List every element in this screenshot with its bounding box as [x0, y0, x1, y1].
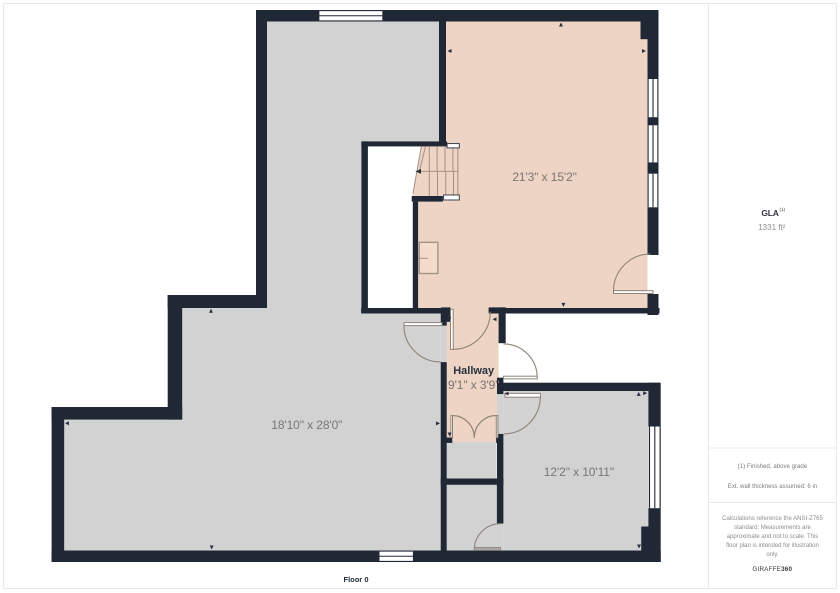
svg-text:1331 ft²: 1331 ft²	[758, 223, 785, 232]
svg-text:GIRAFFE360: GIRAFFE360	[752, 566, 792, 573]
svg-text:18'10" x 28'0": 18'10" x 28'0"	[271, 418, 342, 432]
svg-text:Hallway: Hallway	[453, 365, 495, 377]
svg-text:Ext. wall thickness assumed: 6: Ext. wall thickness assumed: 6 in	[728, 483, 817, 490]
svg-text:12'2" x 10'11": 12'2" x 10'11"	[544, 465, 614, 479]
svg-text:standard: Measurements are: standard: Measurements are	[734, 525, 811, 531]
svg-text:21'3" x 15'2": 21'3" x 15'2"	[512, 170, 577, 184]
svg-text:GLA: GLA	[761, 208, 778, 218]
svg-text:Floor 0: Floor 0	[343, 575, 368, 584]
svg-text:floor plan is intended for ill: floor plan is intended for illustration	[726, 543, 819, 549]
svg-text:Calculations reference the ANS: Calculations reference the ANSI-Z765	[722, 516, 823, 522]
svg-text:(1) Finished, above grade: (1) Finished, above grade	[738, 463, 808, 470]
svg-text:approximate and not to scale.: approximate and not to scale. This	[727, 534, 819, 540]
svg-text:9'1" x 3'9": 9'1" x 3'9"	[448, 378, 499, 392]
svg-text:(1): (1)	[780, 207, 786, 212]
svg-text:only.: only.	[766, 552, 779, 558]
